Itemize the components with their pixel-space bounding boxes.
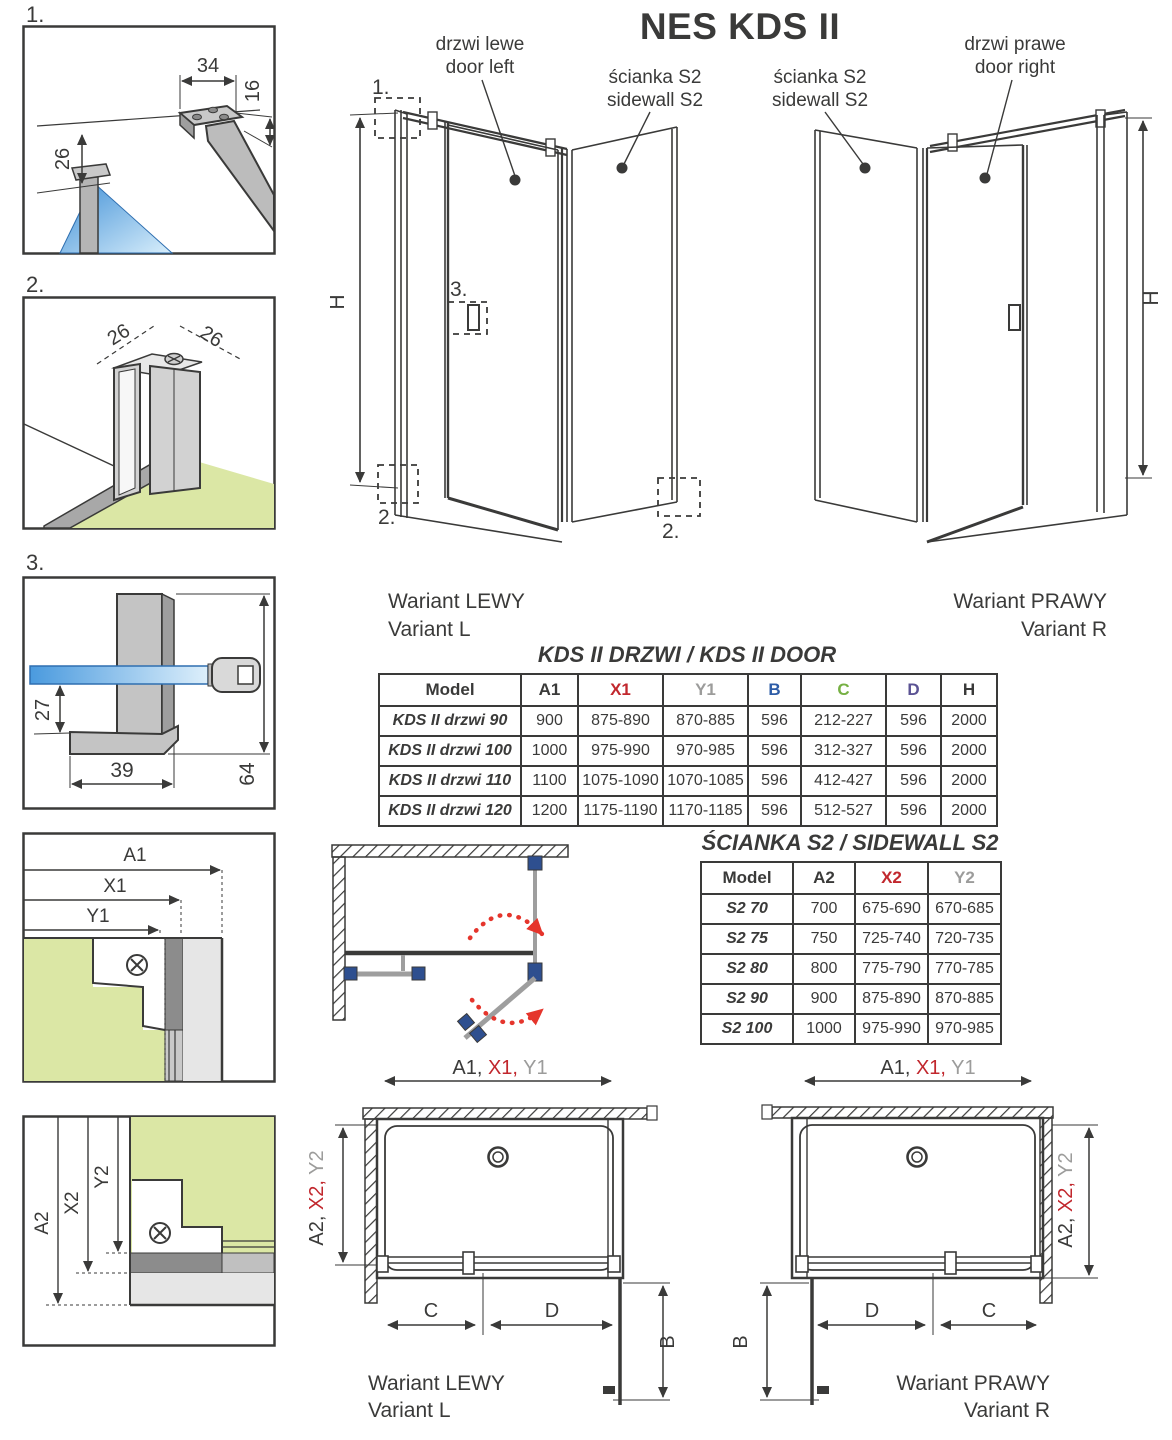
value-cell: 2000 xyxy=(941,706,997,736)
svg-text:2.: 2. xyxy=(662,520,680,543)
fitting-blue xyxy=(470,1026,487,1043)
dim-a1x1y1: A1, X1, Y1 xyxy=(452,1060,547,1079)
wall-hatch-top xyxy=(772,1107,1053,1118)
wall-hatch-top xyxy=(332,845,568,857)
svg-text:26: 26 xyxy=(52,148,74,170)
value-cell: 975-990 xyxy=(855,1014,928,1044)
door-table-title: KDS II DRZWI / KDS II DOOR xyxy=(378,642,996,668)
column-header: Model xyxy=(379,674,521,706)
value-cell: 1170-1185 xyxy=(663,796,748,826)
door-table-section: KDS II DRZWI / KDS II DOOR ModelA1X1Y1BC… xyxy=(378,642,996,827)
wall-section xyxy=(183,938,222,1081)
pivot-fitting xyxy=(945,1252,956,1274)
handle-tick xyxy=(817,1386,829,1394)
callout-dot xyxy=(617,163,628,174)
dim-b: B xyxy=(613,1283,679,1400)
value-cell: 2000 xyxy=(941,766,997,796)
value-cell: 2000 xyxy=(941,736,997,766)
column-header: Y2 xyxy=(928,862,1001,894)
svg-text:34: 34 xyxy=(197,55,219,77)
swinging-door xyxy=(458,978,535,1042)
column-header: A2 xyxy=(793,862,855,894)
sidewall-table-title: ŚCIANKA S2 / SIDEWALL S2 xyxy=(700,830,1000,856)
svg-text:A2: A2 xyxy=(32,1211,53,1234)
marker-2-sidewall: 2. xyxy=(658,478,700,543)
value-cell: 596 xyxy=(748,706,801,736)
sidewall-table-section: ŚCIANKA S2 / SIDEWALL S2 ModelA2X2Y2S2 7… xyxy=(700,830,1000,1045)
callout-dot xyxy=(860,163,871,174)
fitting-blue xyxy=(344,967,357,980)
model-cell: S2 100 xyxy=(701,1014,793,1044)
model-cell: S2 70 xyxy=(701,894,793,924)
svg-text:ścianka S2: ścianka S2 xyxy=(774,67,867,88)
model-cell: KDS II drzwi 100 xyxy=(379,736,521,766)
profile-strip-lower xyxy=(165,1030,183,1081)
value-cell: 975-990 xyxy=(578,736,663,766)
value-cell: 1200 xyxy=(521,796,578,826)
dim-d: D xyxy=(818,1273,933,1335)
svg-text:3.: 3. xyxy=(450,278,468,301)
door-swing-diagram xyxy=(320,838,645,1060)
svg-text:16: 16 xyxy=(242,80,264,102)
column-header: B xyxy=(748,674,801,706)
screw-icon xyxy=(150,1223,170,1243)
profile-strip xyxy=(130,1253,222,1273)
value-cell: 800 xyxy=(793,954,855,984)
open-door-position xyxy=(528,856,542,981)
svg-text:A2, X2, Y2: A2, X2, Y2 xyxy=(1055,1152,1077,1247)
value-cell: 1000 xyxy=(793,1014,855,1044)
column-header: X1 xyxy=(578,674,663,706)
value-cell: 596 xyxy=(748,766,801,796)
table-row: KDS II drzwi 12012001175-11901170-118559… xyxy=(379,796,997,826)
dim-a1x1y1: A1, X1, Y1 xyxy=(880,1060,975,1079)
value-cell: 596 xyxy=(886,796,941,826)
svg-text:sidewall S2: sidewall S2 xyxy=(607,90,703,111)
value-cell: 720-735 xyxy=(928,924,1001,954)
wall-hatch-left xyxy=(365,1119,377,1303)
svg-text:Y2: Y2 xyxy=(92,1165,113,1188)
corner-fitting xyxy=(796,1256,808,1272)
dim-d: D xyxy=(491,1300,612,1325)
svg-text:Variant R: Variant R xyxy=(964,1399,1050,1422)
model-cell: KDS II drzwi 90 xyxy=(379,706,521,736)
value-cell: 2000 xyxy=(941,796,997,826)
svg-text:drzwi lewe: drzwi lewe xyxy=(436,34,525,55)
door-dimensions-table: ModelA1X1Y1BCDHKDS II drzwi 90900875-890… xyxy=(378,673,998,827)
svg-text:X2: X2 xyxy=(62,1191,83,1214)
svg-text:2.: 2. xyxy=(378,506,396,529)
svg-text:B: B xyxy=(730,1335,752,1348)
dim-c: C xyxy=(941,1300,1036,1325)
table-row: S2 90900875-890870-885 xyxy=(701,984,1001,1014)
open-door-plan xyxy=(812,1278,829,1405)
svg-text:B: B xyxy=(657,1335,679,1348)
column-header: X2 xyxy=(855,862,928,894)
column-header: Y1 xyxy=(663,674,748,706)
screw-icon xyxy=(165,354,183,365)
svg-text:Variant L: Variant L xyxy=(368,1399,451,1422)
corner-profile xyxy=(114,354,202,501)
table-row: KDS II drzwi 11011001075-10901070-108559… xyxy=(379,766,997,796)
drain-icon xyxy=(908,1148,927,1167)
svg-text:C: C xyxy=(982,1300,996,1322)
variant-right-caption: Wariant PRAWY Variant R xyxy=(953,590,1107,641)
shower-tray xyxy=(792,1118,1043,1278)
value-cell: 412-427 xyxy=(801,766,886,796)
value-cell: 900 xyxy=(793,984,855,1014)
column-header: C xyxy=(801,674,886,706)
profile-strip-lower xyxy=(222,1253,274,1273)
value-cell: 596 xyxy=(748,736,801,766)
dim-c: C xyxy=(388,1273,483,1335)
drain-icon xyxy=(489,1148,508,1167)
marker-1: 1. xyxy=(372,76,420,138)
value-cell: 770-785 xyxy=(928,954,1001,984)
wall-end-cap xyxy=(762,1105,772,1119)
plan-view-right: A1, X1, Y1 D C B A2, xyxy=(700,1060,1172,1440)
glass-panel-edge xyxy=(30,666,208,684)
plan-detail-a1-panel: A1 X1 Y1 xyxy=(22,832,276,1083)
svg-text:D: D xyxy=(545,1300,559,1322)
svg-text:A2, X2, Y2: A2, X2, Y2 xyxy=(306,1150,328,1245)
svg-text:Wariant PRAWY: Wariant PRAWY xyxy=(896,1372,1050,1395)
callout-door-right: drzwi prawe door right xyxy=(964,34,1065,184)
column-header: A1 xyxy=(521,674,578,706)
callout-dot xyxy=(980,173,991,184)
value-cell: 900 xyxy=(521,706,578,736)
variant-left-caption: Wariant LEWY Variant L xyxy=(388,590,525,641)
value-cell: 1100 xyxy=(521,766,578,796)
value-cell: 596 xyxy=(748,796,801,826)
value-cell: 212-227 xyxy=(801,706,886,736)
value-cell: 700 xyxy=(793,894,855,924)
table-row: S2 70700675-690670-685 xyxy=(701,894,1001,924)
handle-tick xyxy=(603,1386,615,1394)
svg-text:1.: 1. xyxy=(372,76,390,99)
wall-hatch-left xyxy=(333,857,345,1020)
model-cell: KDS II drzwi 120 xyxy=(379,796,521,826)
value-cell: 970-985 xyxy=(928,1014,1001,1044)
variant-left-caption: Wariant LEWY Variant L xyxy=(368,1372,505,1422)
plan-view-left: A1, X1, Y1 C D B A2, xyxy=(305,1060,680,1440)
corner-fitting xyxy=(608,1256,620,1272)
shower-tray xyxy=(377,1119,623,1278)
value-cell: 875-890 xyxy=(578,706,663,736)
svg-text:A1: A1 xyxy=(123,845,146,866)
callout-sidewall-left: ścianka S2 sidewall S2 xyxy=(607,67,703,174)
door-handle xyxy=(1009,305,1020,330)
value-cell: 870-885 xyxy=(663,706,748,736)
detail-1-panel: 34 16 26 xyxy=(22,25,276,255)
value-cell: 596 xyxy=(886,736,941,766)
dim-b: B xyxy=(730,1283,819,1400)
plan-detail-a2-panel: Y2 X2 A2 xyxy=(22,1115,276,1347)
model-cell: KDS II drzwi 110 xyxy=(379,766,521,796)
table-row: KDS II drzwi 90900875-890870-885596212-2… xyxy=(379,706,997,736)
model-cell: S2 75 xyxy=(701,924,793,954)
dim-h-left: H xyxy=(330,294,349,309)
svg-text:door right: door right xyxy=(975,57,1056,78)
value-cell: 670-685 xyxy=(928,894,1001,924)
support-bar xyxy=(344,955,425,980)
value-cell: 1175-1190 xyxy=(578,796,663,826)
spec-sheet: NES KDS II 1. 2. 3. 34 16 26 xyxy=(0,0,1172,1440)
value-cell: 512-527 xyxy=(801,796,886,826)
wall-end-cap xyxy=(647,1106,657,1120)
fitting-blue xyxy=(528,856,542,870)
svg-text:C: C xyxy=(424,1300,438,1322)
value-cell: 596 xyxy=(886,766,941,796)
callout-sidewall-right: ścianka S2 sidewall S2 xyxy=(772,67,871,174)
table-row: S2 75750725-740720-735 xyxy=(701,924,1001,954)
detail-3-number: 3. xyxy=(26,550,66,576)
svg-text:door left: door left xyxy=(446,57,515,78)
svg-text:Y1: Y1 xyxy=(86,906,109,927)
value-cell: 870-885 xyxy=(928,984,1001,1014)
detail-2-number: 2. xyxy=(26,272,66,298)
svg-text:64: 64 xyxy=(236,762,259,786)
value-cell: 596 xyxy=(886,706,941,736)
value-cell: 875-890 xyxy=(855,984,928,1014)
svg-text:sidewall S2: sidewall S2 xyxy=(772,90,868,111)
value-cell: 1075-1090 xyxy=(578,766,663,796)
value-cell: 1000 xyxy=(521,736,578,766)
profile-strip xyxy=(165,938,183,1030)
table-row: S2 1001000975-990970-985 xyxy=(701,1014,1001,1044)
isometric-views: H 1. 2. 2. 3. xyxy=(330,30,1172,650)
svg-text:Variant R: Variant R xyxy=(1021,618,1107,641)
wall-section xyxy=(130,1273,274,1305)
end-bracket xyxy=(208,658,260,692)
wall-fitting xyxy=(377,1256,388,1272)
sidewall-dimensions-table: ModelA2X2Y2S2 70700675-690670-685S2 7575… xyxy=(700,861,1002,1045)
column-header: D xyxy=(886,674,941,706)
svg-text:X1: X1 xyxy=(103,876,126,897)
value-cell: 312-327 xyxy=(801,736,886,766)
table-row: S2 80800775-790770-785 xyxy=(701,954,1001,984)
value-cell: 675-690 xyxy=(855,894,928,924)
value-cell: 750 xyxy=(793,924,855,954)
column-header: Model xyxy=(701,862,793,894)
fitting-blue xyxy=(412,967,425,980)
model-cell: S2 80 xyxy=(701,954,793,984)
door-handle xyxy=(468,305,479,330)
value-cell: 775-790 xyxy=(855,954,928,984)
value-cell: 1070-1085 xyxy=(663,766,748,796)
svg-text:27: 27 xyxy=(32,699,54,721)
fitting-blue xyxy=(458,1014,475,1031)
table-row: KDS II drzwi 1001000975-990970-985596312… xyxy=(379,736,997,766)
svg-text:Wariant LEWY: Wariant LEWY xyxy=(368,1372,505,1395)
svg-text:D: D xyxy=(865,1300,879,1322)
svg-text:Variant L: Variant L xyxy=(388,618,471,641)
wall-fitting xyxy=(1031,1256,1042,1272)
dim-h-right: H xyxy=(1140,290,1163,305)
column-header: H xyxy=(941,674,997,706)
value-cell: 970-985 xyxy=(663,736,748,766)
callout-dot xyxy=(510,175,521,186)
svg-text:Wariant PRAWY: Wariant PRAWY xyxy=(953,590,1107,613)
detail-3-panel: 27 39 64 xyxy=(22,576,276,810)
marker-2-left: 2. xyxy=(378,465,418,529)
svg-text:ścianka S2: ścianka S2 xyxy=(609,67,702,88)
svg-text:Wariant LEWY: Wariant LEWY xyxy=(388,590,525,613)
detail-2-panel: 26 26 xyxy=(22,296,276,530)
model-cell: S2 90 xyxy=(701,984,793,1014)
value-cell: 725-740 xyxy=(855,924,928,954)
wall-hatch-top xyxy=(363,1108,647,1119)
svg-text:drzwi prawe: drzwi prawe xyxy=(964,34,1065,55)
open-door-plan xyxy=(603,1278,620,1405)
variant-right-caption: Wariant PRAWY Variant R xyxy=(896,1372,1050,1422)
screw-icon xyxy=(127,955,147,975)
svg-text:39: 39 xyxy=(110,759,133,782)
pivot-fitting xyxy=(463,1252,474,1274)
